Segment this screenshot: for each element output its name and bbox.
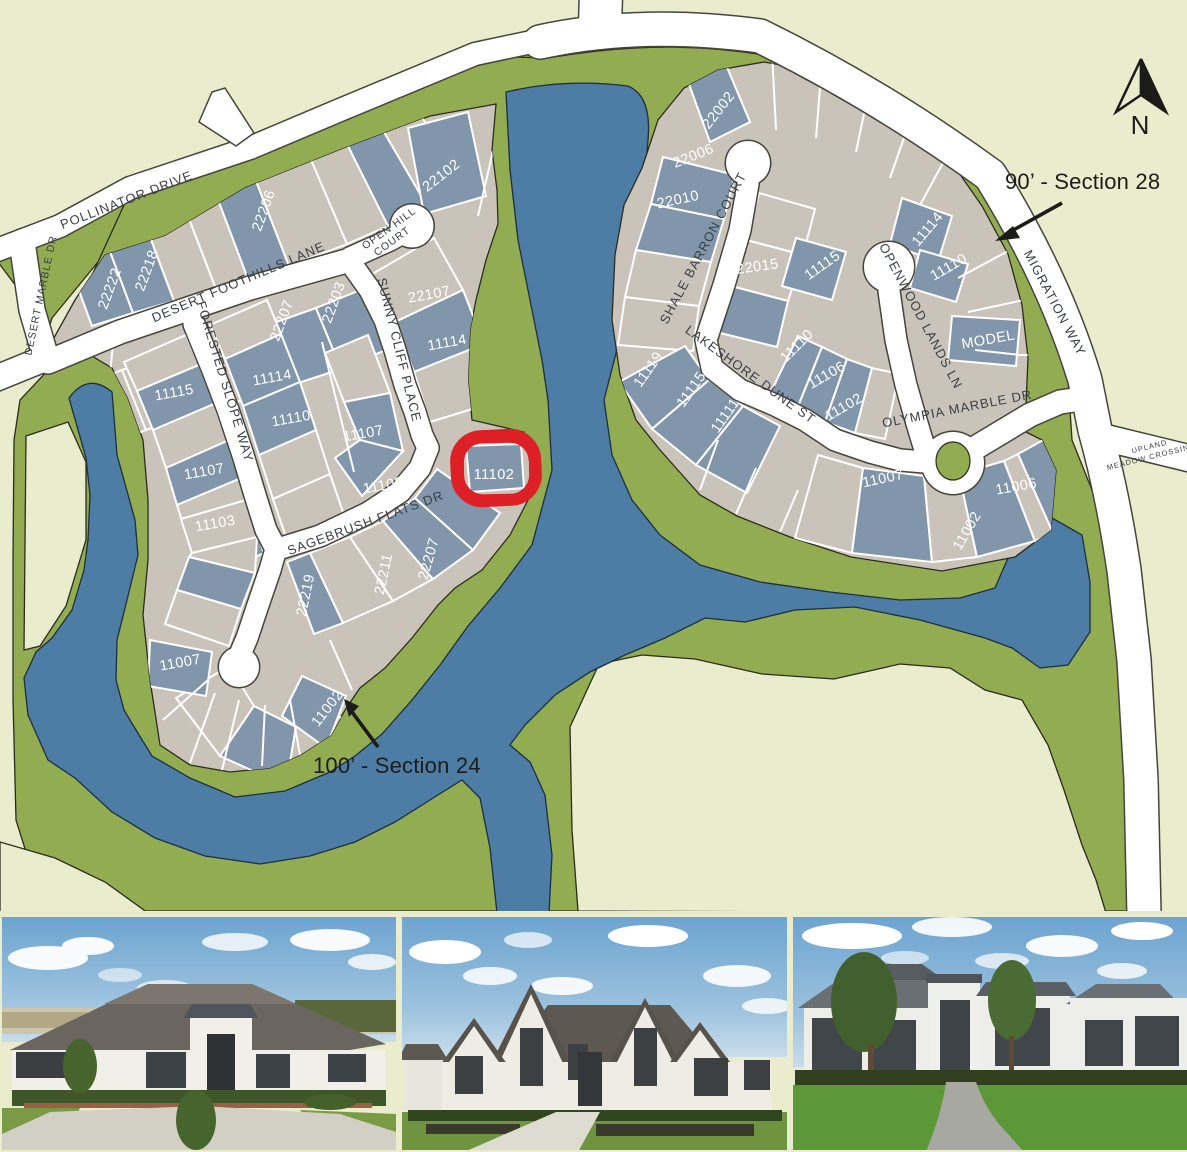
- svg-text:N: N: [1131, 110, 1150, 140]
- svg-text:100’ - Section 24: 100’ - Section 24: [313, 753, 481, 778]
- svg-text:90’ - Section 28: 90’ - Section 28: [1005, 169, 1160, 194]
- svg-text:11102: 11102: [474, 467, 515, 483]
